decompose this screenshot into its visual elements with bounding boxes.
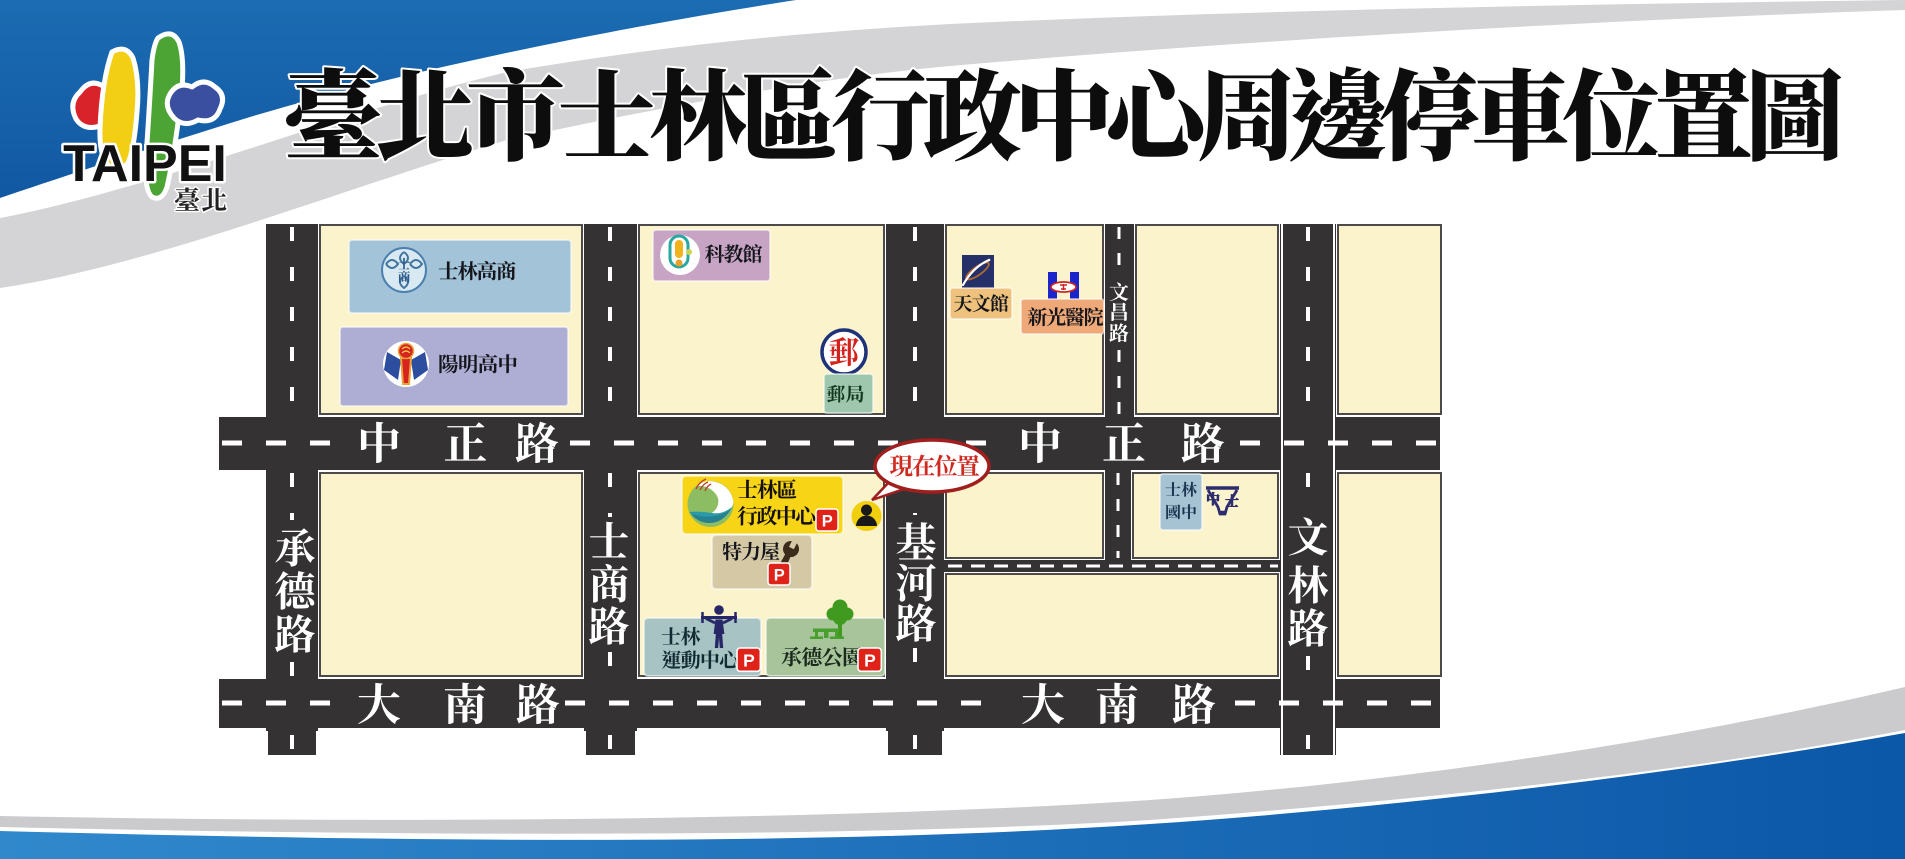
svg-text:TAIPEI: TAIPEI <box>63 135 227 193</box>
